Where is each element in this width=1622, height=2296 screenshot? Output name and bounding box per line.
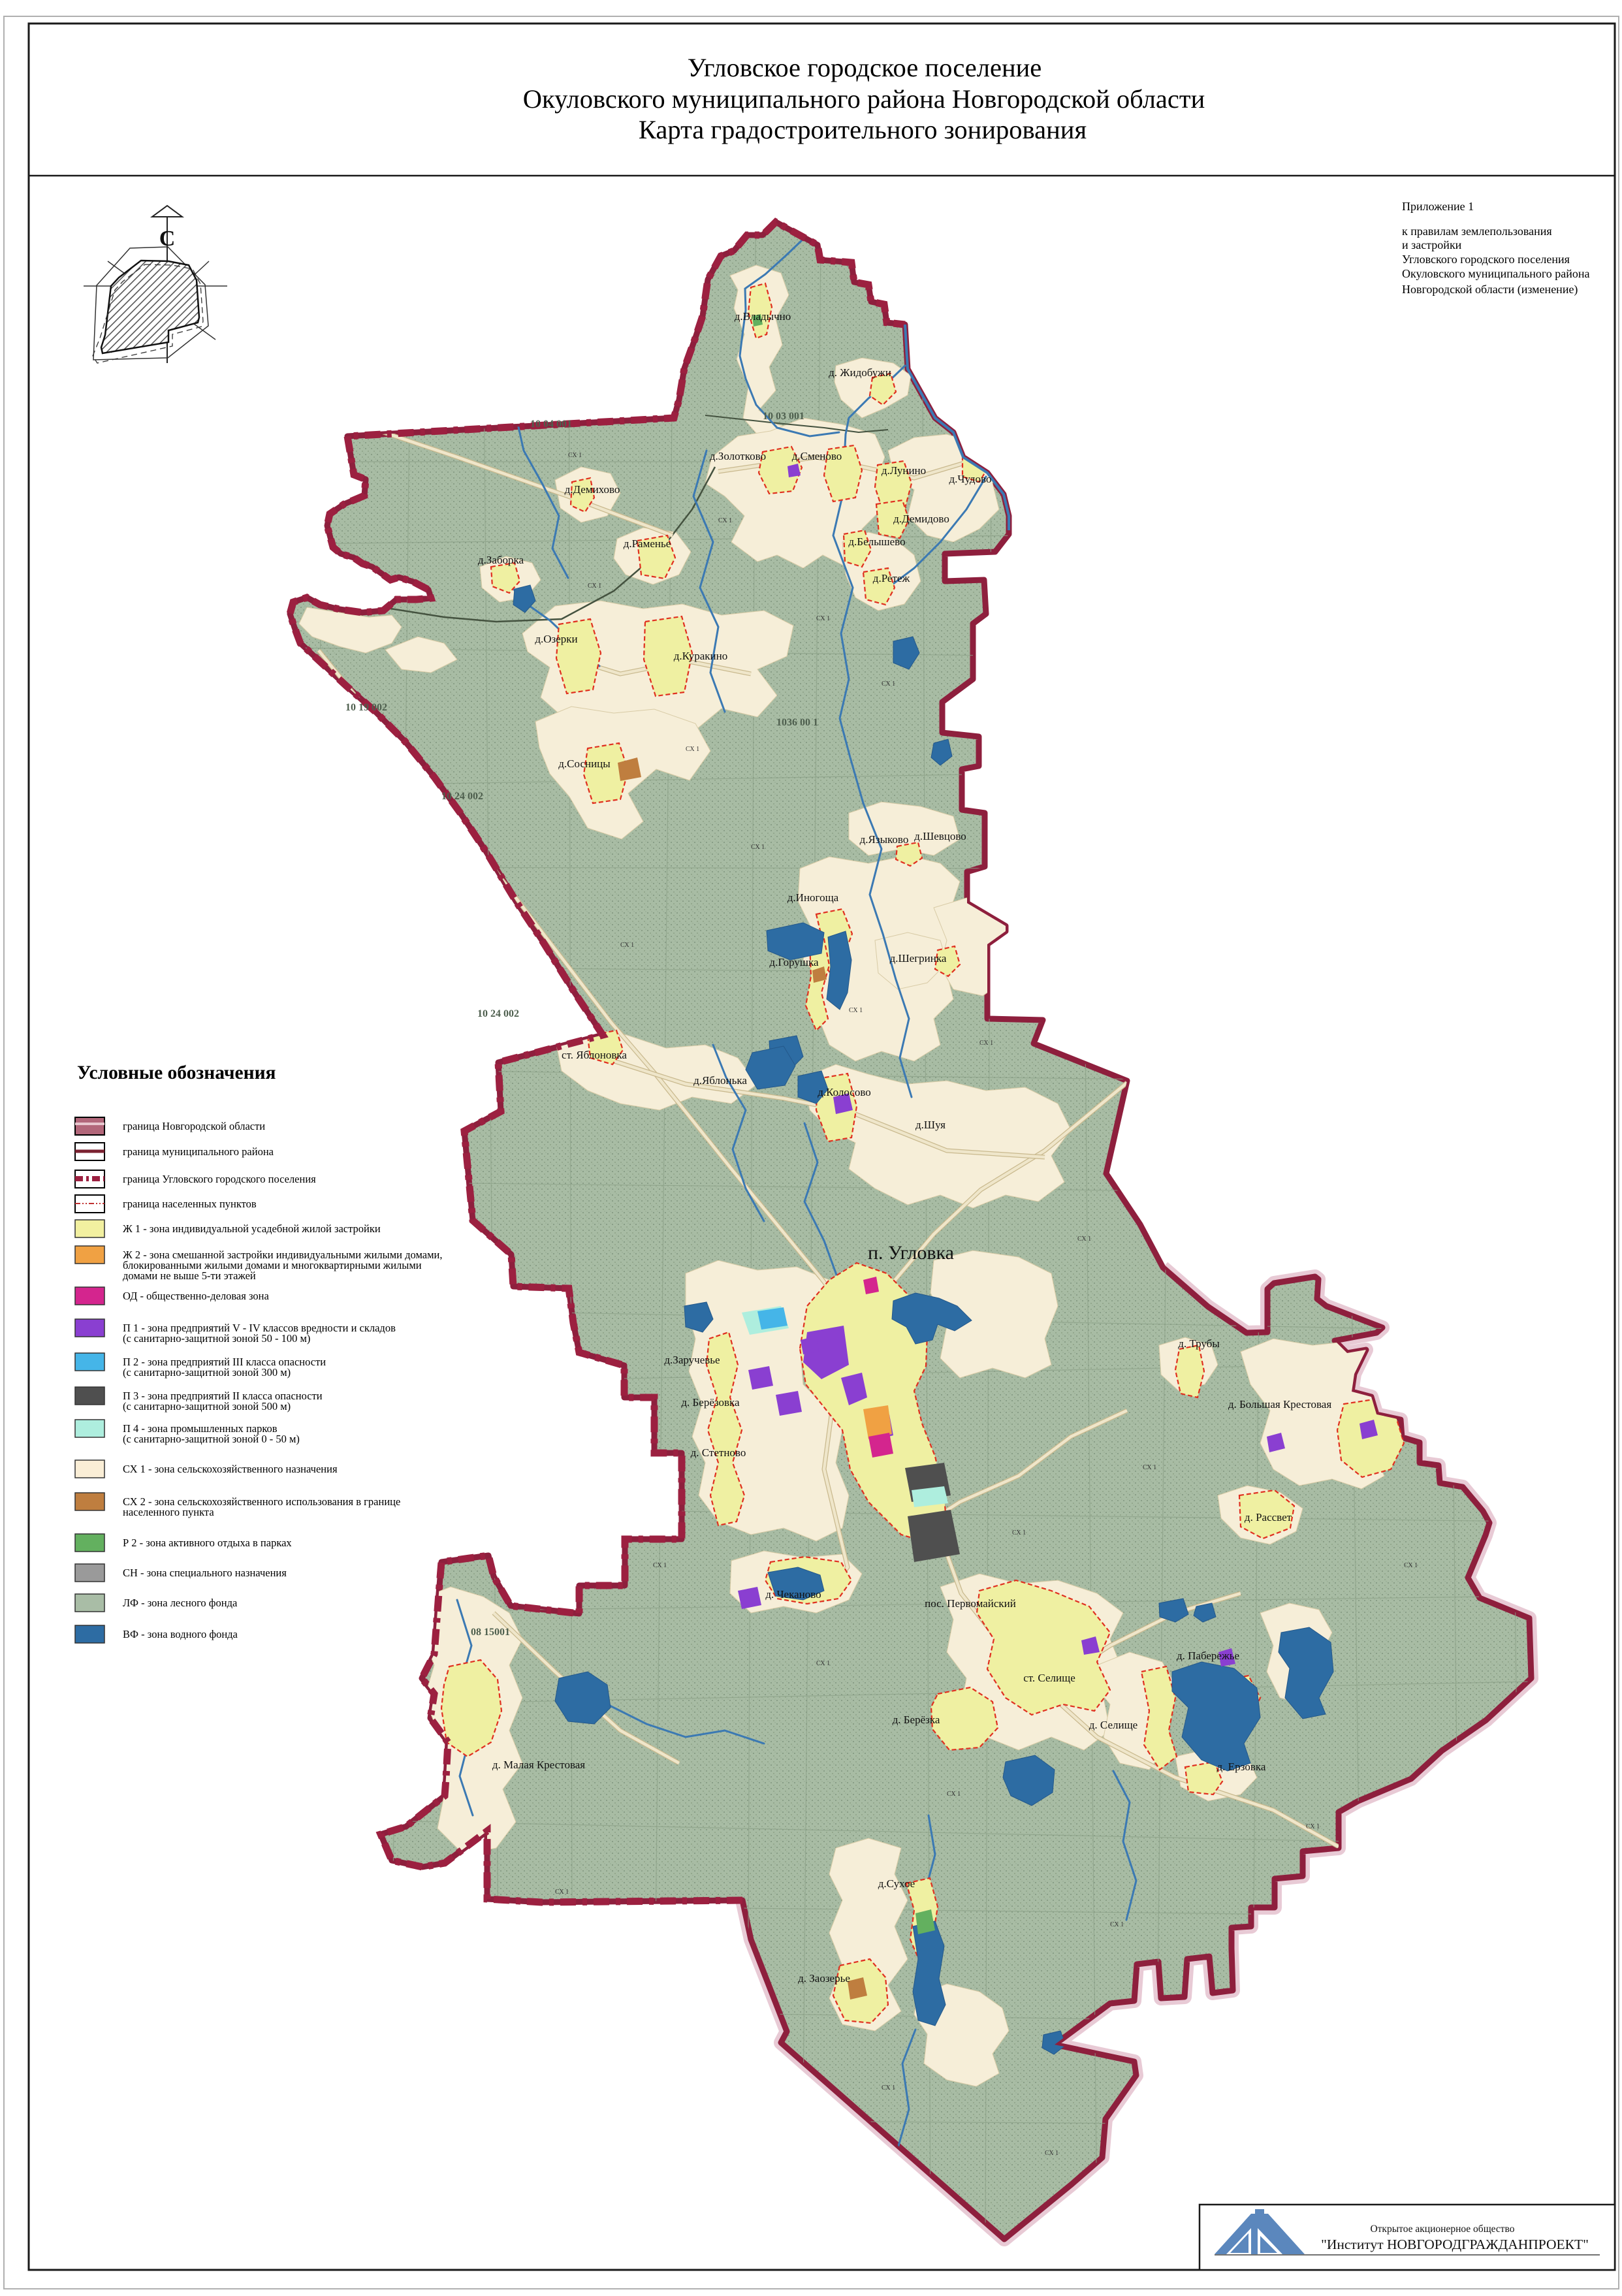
- svg-text:СХ 1: СХ 1: [1110, 1921, 1124, 1928]
- svg-text:д.Горушка: д.Горушка: [769, 956, 819, 968]
- svg-text:д.Шуя: д.Шуя: [915, 1119, 946, 1131]
- svg-text:ЛФ - зона лесного фонда: ЛФ - зона лесного фонда: [123, 1597, 238, 1609]
- svg-text:СХ 1: СХ 1: [816, 615, 830, 622]
- svg-text:Окуловского муниципального рай: Окуловского муниципального района Новгор…: [523, 84, 1205, 114]
- svg-text:Окуловского муниципального рай: Окуловского муниципального района: [1402, 267, 1590, 280]
- svg-text:СХ 1: СХ 1: [816, 1660, 830, 1667]
- svg-text:д.Демихово: д.Демихово: [565, 483, 620, 496]
- svg-text:д.Лунино: д.Лунино: [882, 464, 926, 477]
- svg-text:(с санитарно-защитной зоной 30: (с санитарно-защитной зоной 300 м): [123, 1366, 291, 1379]
- svg-text:д.Демидово: д.Демидово: [893, 513, 949, 525]
- svg-text:д.Сменово: д.Сменово: [792, 450, 842, 462]
- svg-text:д. Стетново: д. Стетново: [691, 1446, 746, 1459]
- svg-text:д.Куракино: д.Куракино: [674, 650, 727, 662]
- svg-text:СХ 1: СХ 1: [1077, 1236, 1091, 1243]
- svg-text:10 24 002: 10 24 002: [477, 1008, 519, 1019]
- svg-text:СХ 1: СХ 1: [882, 2084, 895, 2092]
- svg-text:д. Селище: д. Селище: [1089, 1719, 1137, 1731]
- svg-text:Карта градостроительного зонир: Карта градостроительного зонирования: [639, 115, 1087, 144]
- svg-text:д.Сухое: д.Сухое: [878, 1877, 915, 1890]
- svg-text:д. Чеканово: д. Чеканово: [765, 1588, 821, 1601]
- svg-text:СХ 1: СХ 1: [1306, 1823, 1320, 1830]
- svg-text:СХ 1: СХ 1: [1143, 1464, 1156, 1471]
- svg-text:08 15001: 08 15001: [471, 1627, 510, 1638]
- svg-text:д.Раменье: д.Раменье: [624, 537, 671, 550]
- svg-text:домами не выше 5-ти этажей: домами не выше 5-ти этажей: [123, 1269, 256, 1282]
- svg-text:д. Большая Крестовая: д. Большая Крестовая: [1228, 1398, 1332, 1411]
- svg-text:СХ 1: СХ 1: [1404, 1562, 1418, 1569]
- svg-text:д.Белышево: д.Белышево: [848, 535, 905, 548]
- svg-text:д.Ретеж: д.Ретеж: [873, 572, 910, 584]
- svg-text:п. Угловка: п. Угловка: [868, 1242, 954, 1264]
- svg-text:СХ 1: СХ 1: [588, 582, 601, 590]
- svg-text:д. Заозерье: д. Заозерье: [798, 1972, 850, 1985]
- svg-text:ОД - общественно-деловая зона: ОД - общественно-деловая зона: [123, 1290, 269, 1302]
- svg-text:д.Колосово: д.Колосово: [818, 1086, 871, 1098]
- svg-text:Ж 1 - зона индивидуальной усад: Ж 1 - зона индивидуальной усадебной жило…: [123, 1222, 381, 1235]
- svg-text:населенного пункта: населенного пункта: [123, 1506, 214, 1518]
- svg-text:(с санитарно-защитной зоной 50: (с санитарно-защитной зоной 500 м): [123, 1400, 291, 1412]
- svg-text:СХ 1: СХ 1: [686, 746, 699, 753]
- svg-text:д.Озерки: д.Озерки: [535, 633, 577, 645]
- svg-text:10 24 002: 10 24 002: [441, 791, 483, 802]
- svg-text:Угловского городского поселени: Угловского городского поселения: [1402, 253, 1570, 266]
- svg-text:д.Языково: д.Языково: [860, 833, 909, 846]
- svg-text:граница муниципального района: граница муниципального района: [123, 1145, 274, 1158]
- svg-text:и застройки: и застройки: [1402, 238, 1462, 251]
- svg-text:д. Берёзка: д. Берёзка: [893, 1714, 940, 1726]
- svg-text:СХ 1: СХ 1: [555, 1889, 569, 1896]
- svg-text:10 04 001: 10 04 001: [530, 419, 572, 430]
- svg-text:(с санитарно-защитной зоной 0: (с санитарно-защитной зоной 0 - 50 м): [123, 1433, 300, 1445]
- svg-text:Угловское городское поселение: Угловское городское поселение: [688, 53, 1042, 82]
- svg-text:СН - зона специального назначе: СН - зона специального назначения: [123, 1567, 287, 1579]
- svg-text:СХ 1: СХ 1: [751, 844, 765, 851]
- svg-text:пос. Первомайский: пос. Первомайский: [925, 1597, 1016, 1610]
- svg-text:д.Владычно: д.Владычно: [735, 310, 791, 323]
- svg-text:СХ 1: СХ 1: [568, 452, 582, 459]
- svg-text:д.Иногоща: д.Иногоща: [787, 891, 839, 904]
- svg-text:д.Шегринка: д.Шегринка: [890, 952, 947, 965]
- svg-text:ст. Селище: ст. Селище: [1023, 1672, 1075, 1684]
- svg-text:Р 2 - зона активного отдыха в: Р 2 - зона активного отдыха в парках: [123, 1537, 292, 1549]
- svg-text:д.Чудово: д.Чудово: [949, 473, 992, 485]
- svg-text:к правилам землепользования: к правилам землепользования: [1402, 225, 1552, 238]
- svg-text:ВФ - зона водного фонда: ВФ - зона водного фонда: [123, 1628, 238, 1640]
- svg-text:граница Угловского городского: граница Угловского городского поселения: [123, 1173, 316, 1185]
- svg-text:СХ 1: СХ 1: [1012, 1529, 1026, 1537]
- svg-text:д. Пабережье: д. Пабережье: [1177, 1650, 1239, 1662]
- svg-text:СХ 1: СХ 1: [620, 942, 634, 949]
- svg-text:(с санитарно-защитной зоной 50: (с санитарно-защитной зоной 50 - 100 м): [123, 1332, 310, 1345]
- svg-text:Приложение 1: Приложение 1: [1402, 200, 1474, 213]
- svg-text:Условные обозначения: Условные обозначения: [77, 1062, 276, 1083]
- svg-text:д.Яблонька: д.Яблонька: [693, 1074, 747, 1087]
- svg-text:д.Сосницы: д.Сосницы: [558, 757, 611, 770]
- svg-text:д. Рассвет: д. Рассвет: [1245, 1511, 1292, 1523]
- svg-text:д. Трубы: д. Трубы: [1178, 1337, 1220, 1350]
- svg-text:граница населенных пунктов: граница населенных пунктов: [123, 1198, 257, 1210]
- svg-text:д.Заборка: д.Заборка: [478, 554, 524, 566]
- svg-text:"Институт НОВГОРОДГРАЖДАНПРОЕК: "Институт НОВГОРОДГРАЖДАНПРОЕКТ": [1321, 2237, 1589, 2252]
- svg-text:д. Жидобужи: д. Жидобужи: [829, 366, 891, 379]
- svg-text:граница Новгородской области: граница Новгородской области: [123, 1120, 265, 1132]
- svg-text:д. Ерзовка: д. Ерзовка: [1217, 1761, 1266, 1773]
- svg-text:СХ 1: СХ 1: [1045, 2150, 1058, 2157]
- svg-text:СХ 1: СХ 1: [718, 517, 732, 524]
- svg-text:Новгородской области (изменени: Новгородской области (изменение): [1402, 283, 1578, 296]
- svg-text:СХ 1: СХ 1: [653, 1562, 667, 1569]
- svg-text:10 03 001: 10 03 001: [763, 411, 804, 422]
- svg-text:10 19 002: 10 19 002: [345, 702, 387, 713]
- svg-text:д. Берёзовка: д. Берёзовка: [681, 1396, 740, 1409]
- svg-text:СХ 1: СХ 1: [947, 1791, 961, 1798]
- svg-text:СХ 1 - зона сельскохозяйственн: СХ 1 - зона сельскохозяйственного назнач…: [123, 1463, 338, 1475]
- svg-text:д.Шевцово: д.Шевцово: [914, 830, 966, 842]
- svg-text:1036 00 1: 1036 00 1: [776, 717, 818, 728]
- svg-text:д.Золотково: д.Золотково: [710, 450, 766, 462]
- svg-text:Открытое акционерное общество: Открытое акционерное общество: [1370, 2224, 1514, 2235]
- svg-text:д. Малая Крестовая: д. Малая Крестовая: [492, 1759, 585, 1771]
- svg-text:СХ 1: СХ 1: [979, 1040, 993, 1047]
- svg-text:СХ 1: СХ 1: [882, 680, 895, 688]
- svg-text:ст. Яблоновка: ст. Яблоновка: [562, 1049, 627, 1061]
- svg-text:СХ 1: СХ 1: [849, 1007, 863, 1014]
- svg-text:д.Заручевье: д.Заручевье: [664, 1354, 720, 1366]
